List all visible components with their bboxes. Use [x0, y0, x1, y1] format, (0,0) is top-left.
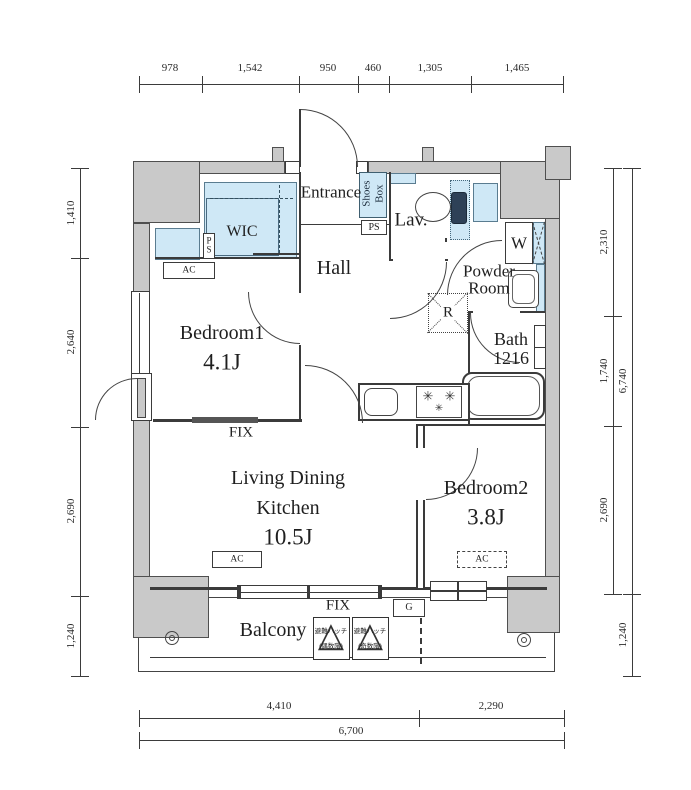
floor-plan: 978 1,542 950 460 1,305 1,465 1,410 2,64… [0, 0, 691, 790]
ps-label: PS [368, 223, 379, 233]
wall-pillar [272, 147, 284, 162]
interior-wall [520, 311, 545, 313]
hatch-odd-label: 避難ハッチ [354, 625, 387, 635]
dim-label-right: 2,690 [598, 498, 610, 523]
bathtub-inner [467, 376, 540, 416]
room-label-ldk: Kitchen [256, 498, 319, 518]
balcony-drain-inner [169, 635, 175, 641]
bedroom1-closet [155, 228, 200, 260]
ps-label: PS [205, 237, 214, 256]
interior-wall [416, 424, 545, 426]
dim-label-right-balcony: 1,240 [617, 623, 629, 648]
room-label-lav: Lav. [394, 211, 427, 230]
dim-tick [358, 76, 359, 93]
ac-label: AC [475, 555, 488, 565]
shoes-box-label: Shoes Box [360, 171, 385, 217]
entrance-door-arc [300, 109, 358, 167]
room-label-ldk-size: 10.5J [263, 526, 312, 549]
entrance-door-jamb [285, 161, 300, 174]
dim-tick [623, 676, 641, 677]
exterior-wall [133, 419, 150, 577]
dim-tick [563, 76, 564, 93]
dim-tick [564, 732, 565, 749]
balcony-partition-line [420, 618, 422, 664]
exterior-wall [507, 576, 560, 633]
bedroom1-side-window [131, 291, 150, 375]
room-label-powder: Powder [463, 263, 515, 280]
ac-label: AC [230, 555, 243, 565]
wic-hanger-pipe [279, 185, 280, 253]
dim-label-right: 2,310 [598, 230, 610, 255]
dim-label-top: 950 [320, 62, 337, 74]
room-label-bedroom1-size: 4.1J [203, 351, 241, 374]
dim-label-top: 1,465 [505, 62, 530, 74]
exterior-wall [133, 576, 209, 638]
interior-wall [155, 257, 301, 259]
dim-label-right: 1,740 [598, 359, 610, 384]
dim-label-bottom: 4,410 [267, 700, 292, 712]
dim-label-right-total: 6,740 [617, 369, 629, 394]
window-sash-mark [378, 586, 381, 598]
room-label-entrance: Entrance [301, 184, 361, 201]
dim-label-left: 1,240 [65, 624, 77, 649]
stove-burner-icon: ✳ [423, 390, 434, 403]
washer-label: W [511, 235, 527, 252]
balcony-drain-inner [521, 637, 527, 643]
dim-label-bottom: 2,290 [479, 700, 504, 712]
side-door-leaf [137, 378, 146, 418]
dim-label-left: 1,410 [65, 201, 77, 226]
window-sash-mark [307, 586, 310, 598]
room-label-powder: Room [468, 280, 510, 297]
wall-pillar [545, 146, 571, 180]
window-mullion [139, 293, 140, 373]
dim-tick [604, 316, 622, 317]
dim-tick [71, 427, 89, 428]
side-door-arc [95, 378, 137, 420]
room-label-bedroom2-size: 3.8J [467, 506, 505, 529]
dim-tick [139, 710, 140, 727]
interior-wall [445, 259, 448, 261]
room-label-bath-size: 1216 [493, 349, 529, 367]
dim-line-bottom-total [139, 740, 564, 741]
entrance-door-leaf [299, 109, 301, 167]
stove-burner-icon: ✳ [435, 404, 443, 414]
interior-wall [299, 345, 301, 422]
room-label-balcony: Balcony [240, 620, 307, 640]
exterior-wall [133, 161, 200, 223]
hatch-even-label: (偶数階) [319, 640, 343, 650]
dim-tick [604, 168, 622, 169]
dim-label-left: 2,640 [65, 330, 77, 355]
refrigerator-label: R [441, 306, 455, 321]
dim-label-top: 460 [365, 62, 382, 74]
fix-window-label: FIX [326, 599, 350, 614]
dim-label-bottom-total: 6,700 [339, 725, 364, 737]
dim-line-bottom [139, 718, 564, 719]
dim-tick [139, 732, 140, 749]
dim-tick [71, 168, 89, 169]
dim-label-top: 1,305 [418, 62, 443, 74]
dim-tick [623, 594, 641, 595]
room-label-wic: WIC [226, 224, 257, 240]
shoes-box-label-line2: Box [373, 171, 386, 217]
dim-line-right-inner [613, 168, 614, 595]
wic-sliding-door [253, 253, 301, 255]
fix-window-bar [192, 417, 258, 423]
stove-burner-icon: ✳ [445, 390, 456, 403]
exterior-wall [545, 218, 560, 577]
dim-tick [71, 676, 89, 677]
dim-tick [623, 168, 641, 169]
dim-tick [471, 76, 472, 93]
wall-pillar [422, 147, 434, 162]
room-label-ldk: Living Dining [231, 468, 345, 488]
room-label-bath: Bath [494, 330, 528, 348]
dim-tick [604, 426, 622, 427]
ldk-door-arc [305, 365, 363, 423]
dim-tick [71, 596, 89, 597]
dim-tick [419, 710, 420, 727]
shoes-box-label-line1: Shoes [360, 171, 373, 217]
interior-wall [389, 259, 393, 261]
wic-hanger-pipe [210, 198, 293, 199]
ac-label: AC [182, 266, 195, 276]
dim-label-left: 2,690 [65, 499, 77, 524]
dim-tick [202, 76, 203, 93]
dim-label-top: 978 [162, 62, 179, 74]
room-label-bedroom1: Bedroom1 [180, 323, 264, 343]
dim-line-left [80, 168, 81, 676]
room-label-bedroom2: Bedroom2 [444, 478, 528, 498]
dim-tick [299, 76, 300, 93]
kitchen-sink [364, 388, 398, 416]
dim-tick [564, 710, 565, 727]
window-sash-mark [238, 586, 241, 598]
room-label-hall: Hall [317, 258, 351, 278]
interior-wall [445, 238, 447, 242]
dim-tick [139, 76, 140, 93]
dim-label-top: 1,542 [238, 62, 263, 74]
toilet-tank [451, 192, 467, 224]
lav-pipe-space [390, 173, 416, 184]
hatch-odd-label: (奇数階) [358, 640, 382, 650]
interior-wall [389, 172, 391, 261]
pipe-space [473, 183, 498, 222]
dim-tick [71, 258, 89, 259]
bath-counter-line [534, 347, 546, 348]
dim-tick [389, 76, 390, 93]
hatch-even-label: 避難ハッチ [315, 625, 348, 635]
window-sash-mark [457, 581, 459, 601]
vanity-basin [512, 274, 535, 304]
dim-line-right-outer [632, 168, 633, 677]
gas-meter-label: G [405, 603, 412, 613]
exterior-wall [133, 223, 150, 293]
fix-window-label: FIX [229, 426, 253, 441]
dim-tick [604, 594, 622, 595]
